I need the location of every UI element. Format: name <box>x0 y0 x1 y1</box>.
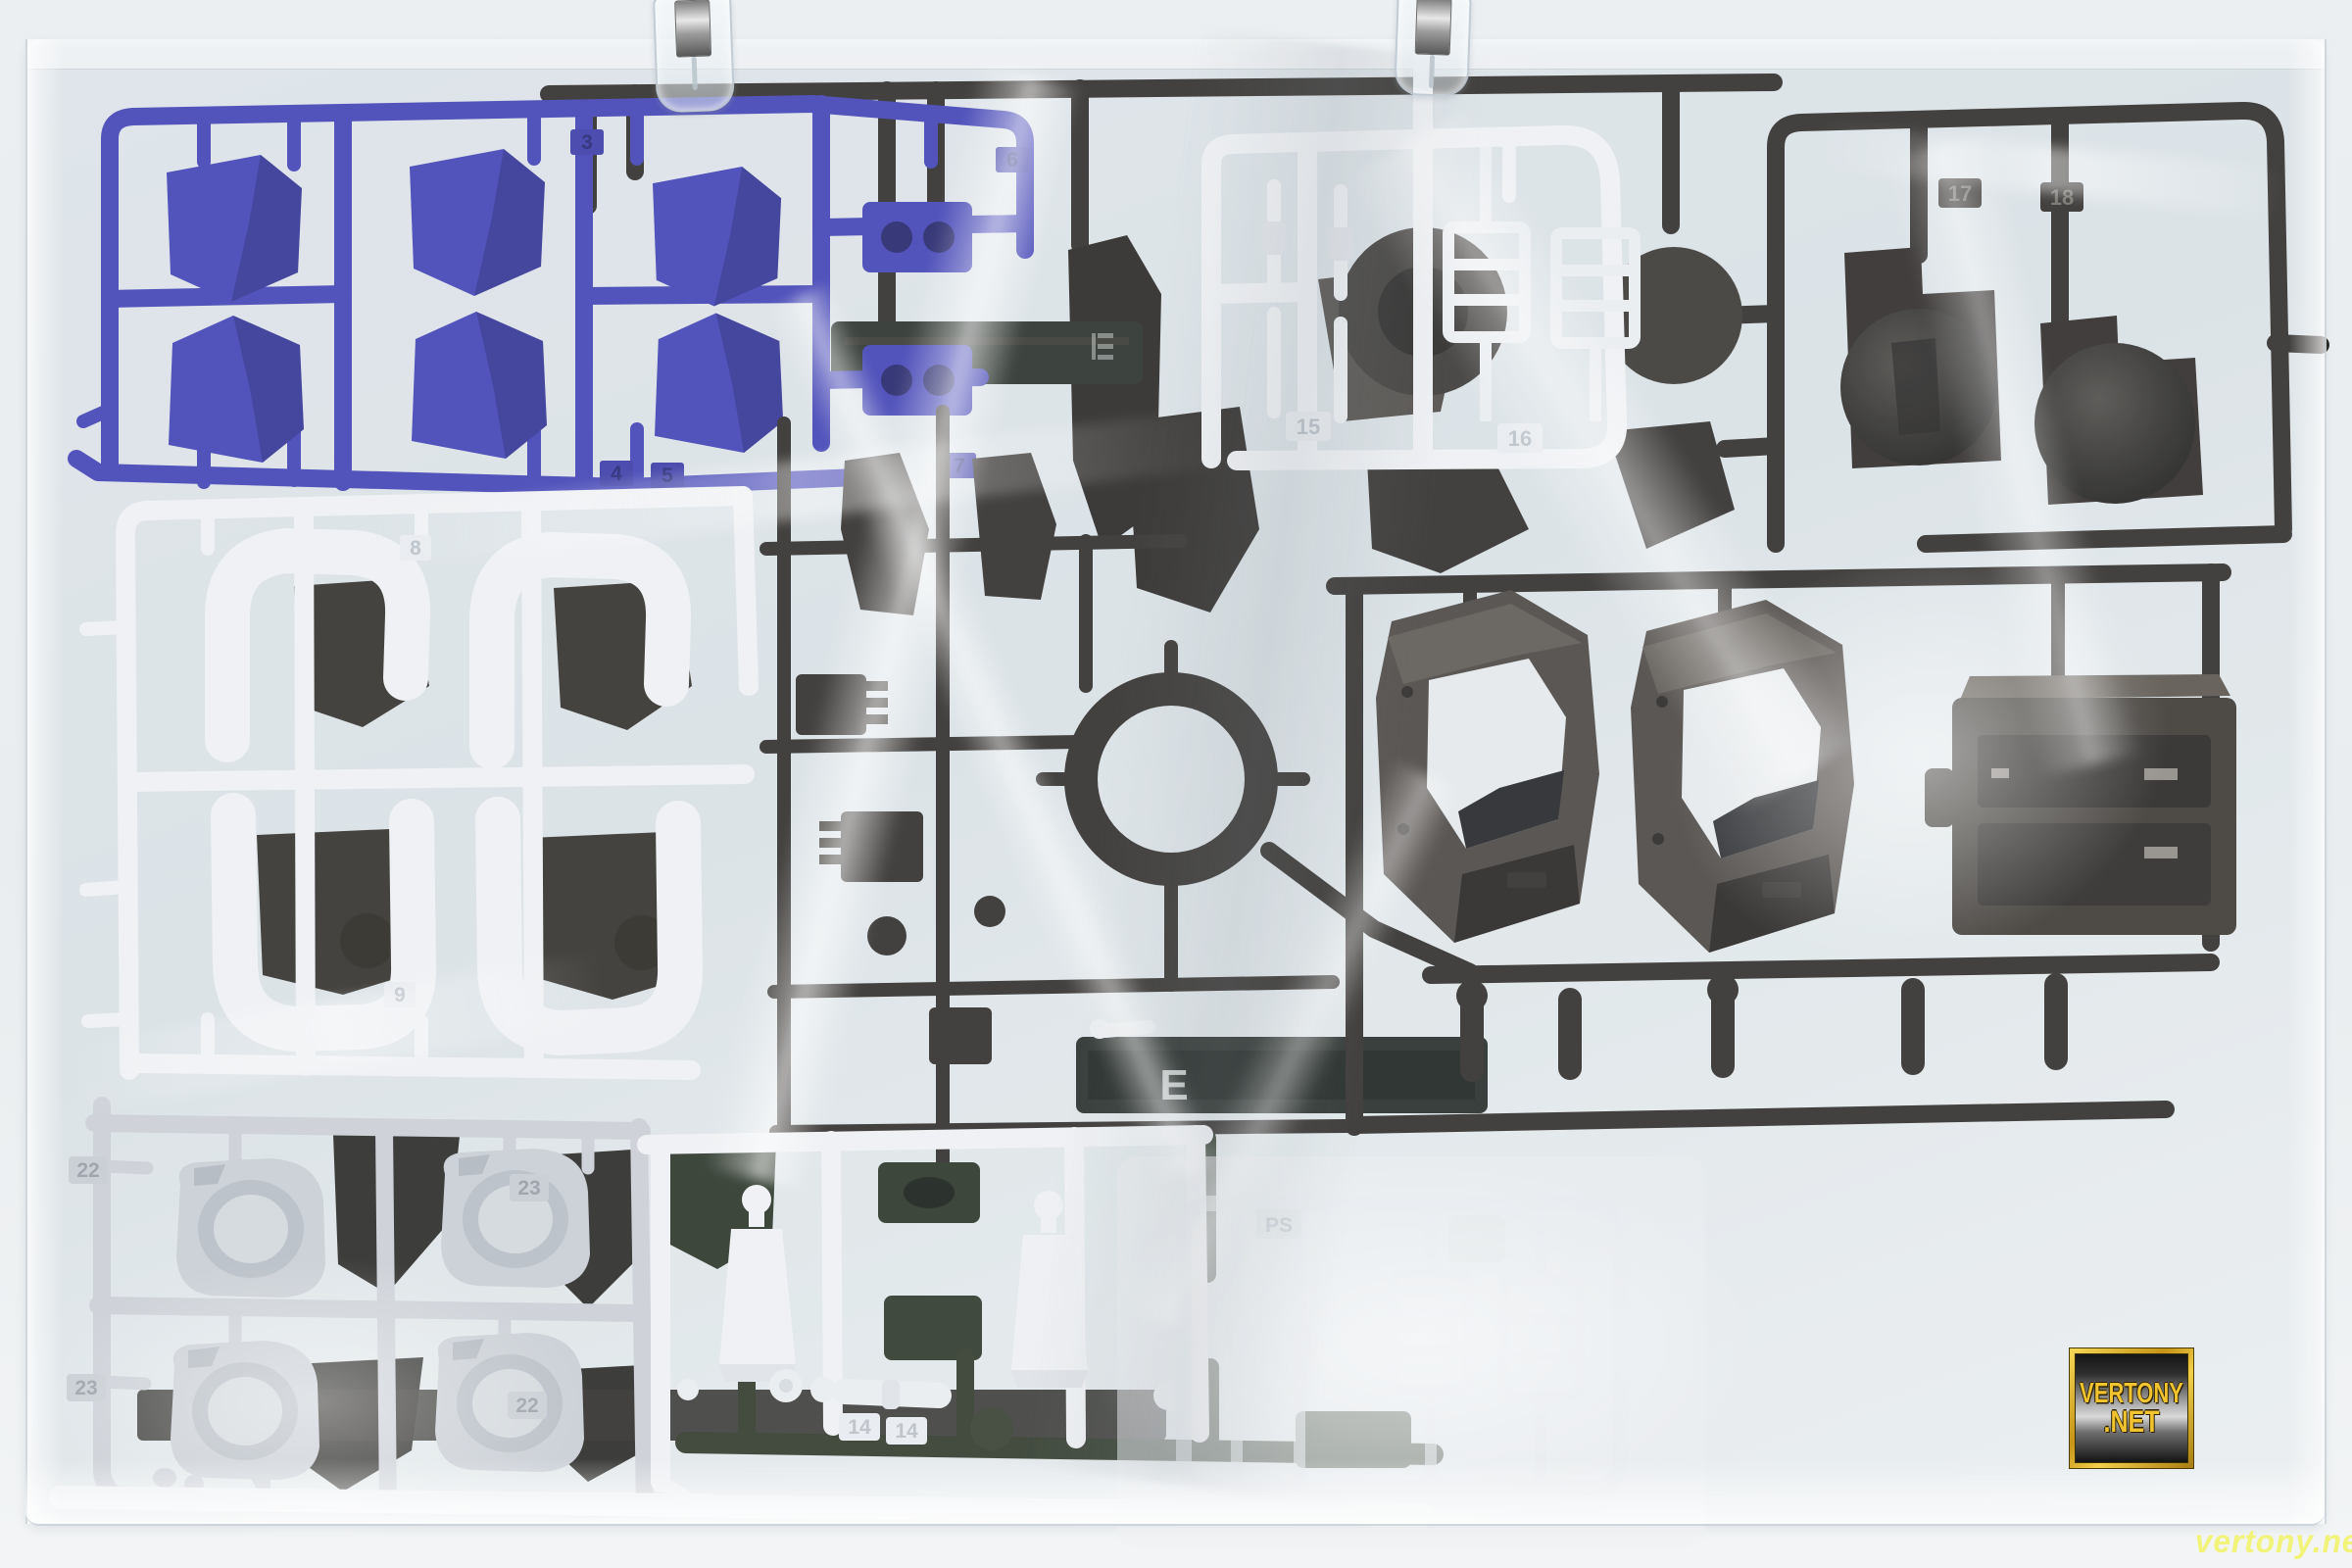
dark-part <box>1127 407 1259 612</box>
dark-peg-parts <box>1472 985 2056 1070</box>
clip-metal-lever <box>674 0 711 58</box>
clip-metal-lever <box>1415 0 1452 56</box>
gate-tag-number: 14 <box>895 1420 918 1443</box>
molded-letter: E <box>1159 1061 1188 1109</box>
photo-of-model-kit-bag: 17 18 <box>0 0 2352 1568</box>
blue-shield-part <box>653 167 781 307</box>
runners-layer: 17 18 <box>0 0 2352 1568</box>
dark-block-part <box>819 811 923 882</box>
blue-block-part <box>862 202 972 272</box>
blue-shield-part <box>412 312 547 459</box>
bag-bottom-fold <box>25 1458 2325 1526</box>
blue-shield-part <box>167 155 302 302</box>
gray-socket-part <box>176 1158 325 1298</box>
runner-dark-top-right: 17 18 <box>1720 111 2321 544</box>
dark-block-part <box>796 674 888 735</box>
gate-tag-number: 17 <box>1948 181 1972 206</box>
gate-tag-number: 14 <box>848 1416 871 1439</box>
dark-fin-part <box>841 453 929 615</box>
dark-fin-part <box>972 453 1056 600</box>
molded-marks <box>1092 333 1113 360</box>
watermark-corner-text: vertony.net <box>2195 1523 2352 1560</box>
runner-white-left: 8 9 <box>86 496 749 1070</box>
gate-tag-number: 8 <box>410 537 421 560</box>
gate-tag-number: 22 <box>76 1159 99 1182</box>
dark-block-part <box>929 1007 992 1064</box>
blue-shield-part <box>169 316 304 463</box>
box-frame-part <box>1925 674 2236 935</box>
bag-left-edge <box>25 39 63 1524</box>
gate-tag-number: 6 <box>1006 149 1018 171</box>
watermark-logo-inner: VERTONY .NET <box>2076 1354 2187 1462</box>
bag-right-edge <box>2289 39 2327 1524</box>
blue-shield-part <box>410 149 545 296</box>
gate-tag-number: 18 <box>2050 185 2074 210</box>
gray-socket-part <box>441 1149 590 1288</box>
bag-clip-right <box>1394 0 1472 97</box>
clip-wire <box>1429 55 1435 88</box>
gate-tag-number: 16 <box>1508 426 1532 451</box>
watermark-logo-box: VERTONY .NET <box>2070 1348 2193 1468</box>
gate-tag-number: 23 <box>517 1177 540 1200</box>
dome-part <box>2034 343 2195 504</box>
dark-ring-part <box>1081 689 1261 869</box>
watermark-line2: .NET <box>2104 1404 2160 1440</box>
gate-tag-number: 7 <box>954 455 965 477</box>
clip-wire <box>692 57 698 90</box>
gate-tag-number: 22 <box>515 1395 538 1417</box>
gate-tag-number: 5 <box>661 465 673 487</box>
gate-tag-number: 3 <box>581 131 593 154</box>
gate-tag-number: 23 <box>74 1377 97 1399</box>
blue-block-part <box>862 345 972 416</box>
gate-tag-number: 9 <box>394 984 406 1006</box>
hex-frame-part <box>1631 600 1854 953</box>
hex-frame-part <box>1376 590 1599 943</box>
blue-shield-part <box>655 314 783 454</box>
gate-tag-label: PS <box>1265 1214 1293 1237</box>
gate-tag-number: 15 <box>1297 415 1320 439</box>
bag-clip-left <box>653 0 735 113</box>
gate-tag-number: 4 <box>611 463 622 485</box>
